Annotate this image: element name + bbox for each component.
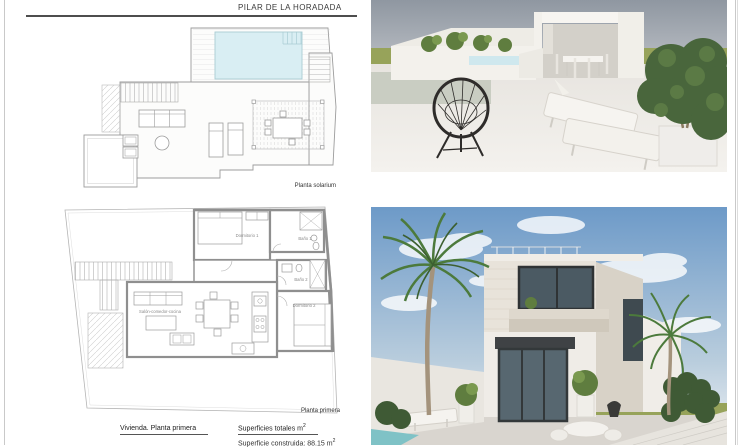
render-villa-exterior: [371, 207, 727, 445]
glass-doors: [499, 349, 567, 421]
label-salon: Salón-comedor-cocina: [139, 309, 182, 314]
label-bano2: Baño 2: [294, 277, 308, 282]
caption-vivienda-planta-primera: Vivienda. Planta primera: [120, 425, 208, 435]
terrace-deck: [88, 313, 123, 368]
construida-sup: 2: [333, 438, 336, 444]
primera-plan-label: Planta primera: [301, 408, 341, 414]
superficies-text: Superficies totales m: [238, 425, 303, 432]
floorplan-solarium: Planta solarium: [56, 17, 346, 195]
superficies-sup: 2: [303, 423, 306, 429]
page-border-right-outer: [737, 0, 738, 445]
render-rooftop-solarium: [371, 0, 727, 172]
door-header: [495, 337, 575, 349]
roof-parapet: [484, 254, 643, 261]
stair-landing: [100, 280, 118, 310]
caption-superficie-construida: Superficie construida: 88.15 m2: [238, 438, 335, 447]
exterior-stairs: [75, 262, 172, 280]
round-table: [155, 136, 169, 150]
label-bano1: Baño 1: [298, 236, 312, 241]
side-window: [623, 299, 643, 361]
bed-dormitorio2: [294, 304, 331, 346]
page-border-right: [735, 0, 736, 445]
side-deck-strip: [102, 85, 120, 132]
label-dormitorio1: Dormitorio 1: [236, 233, 259, 238]
construida-text: Superficie construida: 88.15 m: [238, 440, 333, 447]
page-title: PILAR DE LA HORADADA: [238, 3, 348, 12]
swimming-pool: [215, 32, 302, 79]
page-border-left: [4, 0, 5, 445]
upper-window: [519, 267, 593, 309]
room-hall: [194, 260, 277, 282]
outdoor-sofa: [139, 110, 185, 127]
floorplan-primera: Dormitorio 1 Baño 1 Baño 2 Dormitorio 2 …: [42, 196, 342, 424]
pool-side-stairs: [309, 57, 330, 82]
caption-superficies-totales: Superficies totales m2: [238, 423, 318, 435]
solarium-plan-label: Planta solarium: [295, 183, 336, 189]
pergola: [534, 12, 644, 78]
stairs: [120, 83, 178, 102]
balcony: [509, 309, 609, 332]
label-dormitorio2: Dormitorio 2: [293, 303, 316, 308]
